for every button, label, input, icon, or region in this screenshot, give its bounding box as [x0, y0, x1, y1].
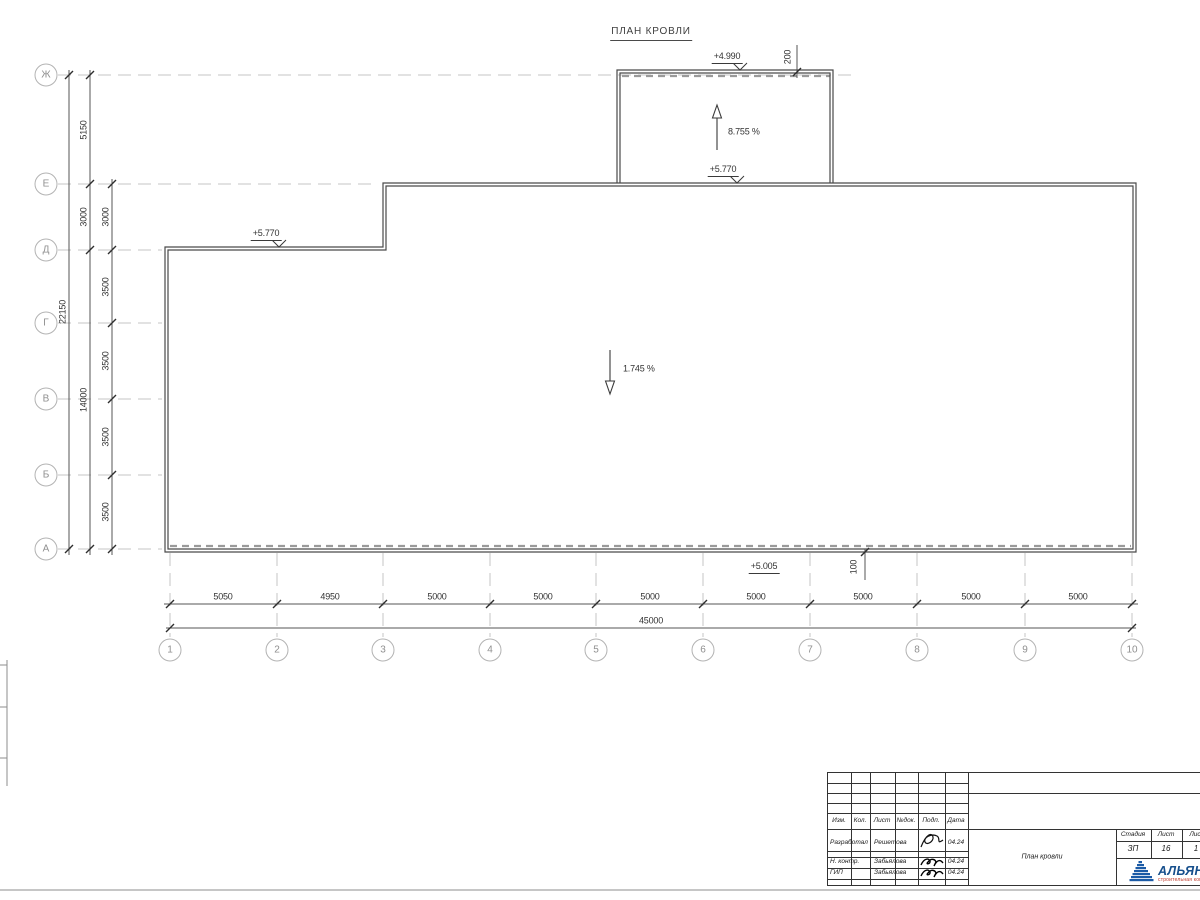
- dim-label: 5000: [853, 593, 872, 602]
- tb-role-gip: ГИП: [830, 870, 843, 877]
- tb-col-data: Дата: [947, 818, 964, 825]
- dim-label: 5000: [1068, 593, 1087, 602]
- elevation-label: +5.770: [708, 165, 739, 177]
- logo-subtitle: строительная комп: [1158, 877, 1200, 883]
- axis-bubble-Д: Д: [35, 239, 58, 262]
- axis-bubble-4: 4: [479, 639, 502, 662]
- dim-label: 3000: [102, 207, 111, 226]
- tb-col-ndok: №док.: [896, 818, 915, 825]
- tb-name-gip: Забьялова: [874, 870, 906, 877]
- dim-label: 5000: [961, 593, 980, 602]
- dim-label: 5000: [746, 593, 765, 602]
- dim-label: 4950: [320, 593, 339, 602]
- tb-name-ncontrol: Забьялова: [874, 859, 906, 866]
- logo-pyramid-icon: [1127, 861, 1154, 883]
- slope-label: 8.755 %: [728, 128, 760, 137]
- axis-bubble-1: 1: [159, 639, 182, 662]
- dimension-ticks: [65, 68, 1136, 632]
- dim-label: 3500: [102, 351, 111, 370]
- tb-name-developer: Решетова: [874, 840, 907, 847]
- axis-bubble-Е: Е: [35, 173, 58, 196]
- dim-label: 5050: [213, 593, 232, 602]
- axis-bubble-Ж: Ж: [35, 64, 58, 87]
- elevation-label: +4.990: [712, 52, 743, 64]
- sheet-title: ПЛАН КРОВЛИ: [610, 26, 692, 41]
- signature-icon: [919, 868, 945, 879]
- dim-label: 5150: [80, 120, 89, 139]
- dim-label: 3500: [102, 427, 111, 446]
- drawing-sheet: ЖЕДГВБА123456789102215051503000140003000…: [0, 0, 1200, 900]
- tb-col-podp: Подп.: [922, 818, 939, 825]
- dim-label: 14000: [80, 388, 89, 412]
- tb-col-list: Лист: [874, 818, 891, 825]
- dim-label-total: 45000: [639, 617, 663, 626]
- axis-bubble-10: 10: [1121, 639, 1144, 662]
- axis-bubble-Г: Г: [35, 312, 58, 335]
- dim-label: 100: [850, 560, 859, 574]
- axis-bubble-В: В: [35, 388, 58, 411]
- tb-role-ncontrol: Н. контр.: [830, 859, 859, 866]
- dim-label: 5000: [533, 593, 552, 602]
- building-outline: [165, 70, 1136, 552]
- roof-plan-linework: [0, 0, 1200, 900]
- dim-label: 3500: [102, 277, 111, 296]
- tb-col-izm: Изм.: [832, 818, 846, 825]
- dim-label: 3000: [80, 207, 89, 226]
- dim-label: 22150: [59, 300, 68, 324]
- tb-date-gip: 04.24: [948, 870, 964, 877]
- tb-role-developer: Разработал: [830, 840, 868, 847]
- axis-bubble-6: 6: [692, 639, 715, 662]
- tb-date-developer: 04.24: [948, 840, 964, 847]
- axis-bubble-9: 9: [1014, 639, 1037, 662]
- axis-bubble-7: 7: [799, 639, 822, 662]
- tb-stage-value: ЗП: [1128, 845, 1139, 853]
- logo-name: АЛЬЯН: [1158, 864, 1200, 878]
- axis-bubble-8: 8: [906, 639, 929, 662]
- axis-bubble-Б: Б: [35, 464, 58, 487]
- elevation-marks: [272, 63, 747, 247]
- slope-label: 1.745 %: [623, 365, 655, 374]
- dim-label: 3500: [102, 502, 111, 521]
- tb-sheets-value: 1: [1194, 845, 1198, 853]
- axis-bubble-3: 3: [372, 639, 395, 662]
- tb-stage-header: Стадия: [1121, 832, 1145, 839]
- tb-sheets-header: Лис: [1189, 832, 1200, 839]
- elevation-label: +5.770: [251, 229, 282, 241]
- slope-arrow-up-icon: [713, 105, 722, 150]
- dim-label: 5000: [640, 593, 659, 602]
- signature-icon: [919, 857, 945, 868]
- tb-sheet-header: Лист: [1158, 832, 1175, 839]
- dim-label: 200: [784, 50, 793, 64]
- tb-col-kol: Кол.: [854, 818, 867, 825]
- roof-drain-dashed-lines: [170, 76, 1131, 546]
- axis-bubble-А: А: [35, 538, 58, 561]
- axis-bubble-5: 5: [585, 639, 608, 662]
- signature-icon: [919, 830, 945, 852]
- tb-date-ncontrol: 04.24: [948, 859, 964, 866]
- axis-grid-lines: [58, 75, 1132, 637]
- title-block: Изм. Кол. Лист №док. Подп. Дата Разработ…: [827, 772, 1200, 886]
- slope-arrow-down-icon: [606, 350, 615, 394]
- dim-label: 5000: [427, 593, 446, 602]
- axis-bubble-2: 2: [266, 639, 289, 662]
- tb-sheet-value: 16: [1162, 845, 1171, 853]
- elevation-label: +5.005: [749, 562, 780, 574]
- tb-doc-name: План кровли: [1021, 854, 1062, 861]
- dimension-lines: [69, 45, 1138, 628]
